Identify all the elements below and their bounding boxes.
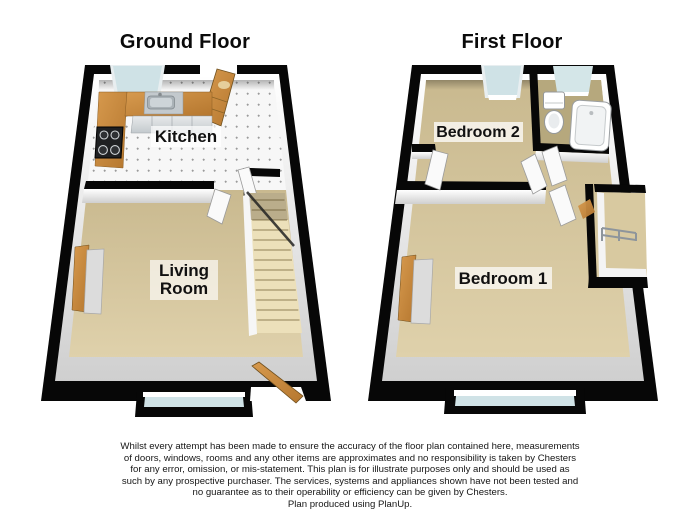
bedroom1-north-wall [397,181,546,190]
floorplan-page: { "ground_floor": { "title": "Ground Flo… [0,0,700,509]
bedroom2-window-sill [488,95,517,100]
sink-icon [144,92,183,114]
living-room-label-line2: Room [160,279,208,298]
kitchen-label: Kitchen [155,127,217,146]
stove-icon [95,127,123,158]
kitchen-window-icon [113,66,162,94]
bedroom2-stub-wall [412,144,436,152]
first-floor-plan: Bedroom 2 Bedroom 1 [368,65,658,414]
gf-bay-window-icon [144,397,244,407]
ff-bay-window-sill [454,390,576,396]
living-room-label-line1: Living [159,261,209,280]
gf-divider-wall [84,181,214,189]
ff-bay-window-icon [455,396,575,406]
bedroom2-window-icon [484,66,521,95]
ground-floor-plan: Kitchen [41,65,331,417]
bedroom2-label: Bedroom 2 [436,124,520,141]
bedroom1-north-wall-face [395,190,546,204]
bedroom1-label: Bedroom 1 [459,269,548,288]
floor-plans-figure: Kitchen [0,0,700,435]
bedroom1-fireplace-icon [398,255,433,324]
bathroom-window-icon [553,66,593,92]
bathtub-icon [569,100,611,152]
gf-divider-wall-face [82,189,214,203]
disclaimer-block: Whilst every attempt has been made to en… [0,441,700,510]
stairwell-south-wall [588,277,648,288]
stairwell-top-wall [594,184,646,193]
disclaimer-text: Whilst every attempt has been made to en… [119,441,581,499]
gf-bay-window-sill [143,392,245,397]
gf-stairs-wall-h [251,168,280,177]
produced-using-text: Plan produced using PlanUp. [119,499,581,510]
living-room-fireplace-icon [72,245,104,314]
